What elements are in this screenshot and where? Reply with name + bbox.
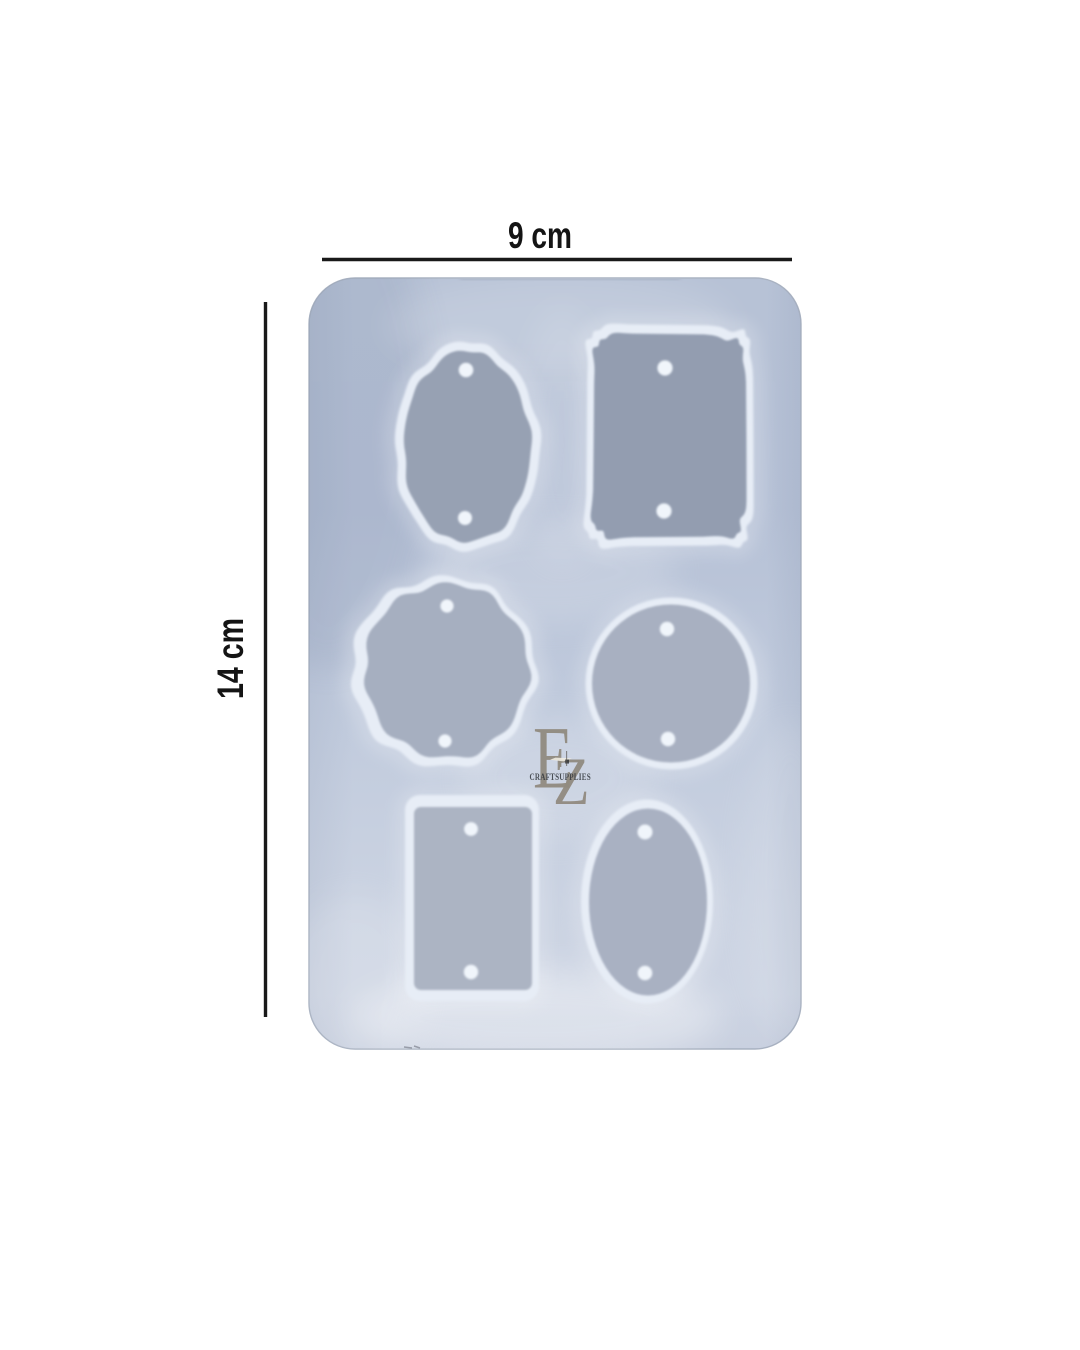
svg-text:14 cm: 14 cm <box>209 618 251 699</box>
svg-text:CRAFTSUPPLIES: CRAFTSUPPLIES <box>530 772 591 782</box>
svg-text:9 cm: 9 cm <box>508 214 572 256</box>
